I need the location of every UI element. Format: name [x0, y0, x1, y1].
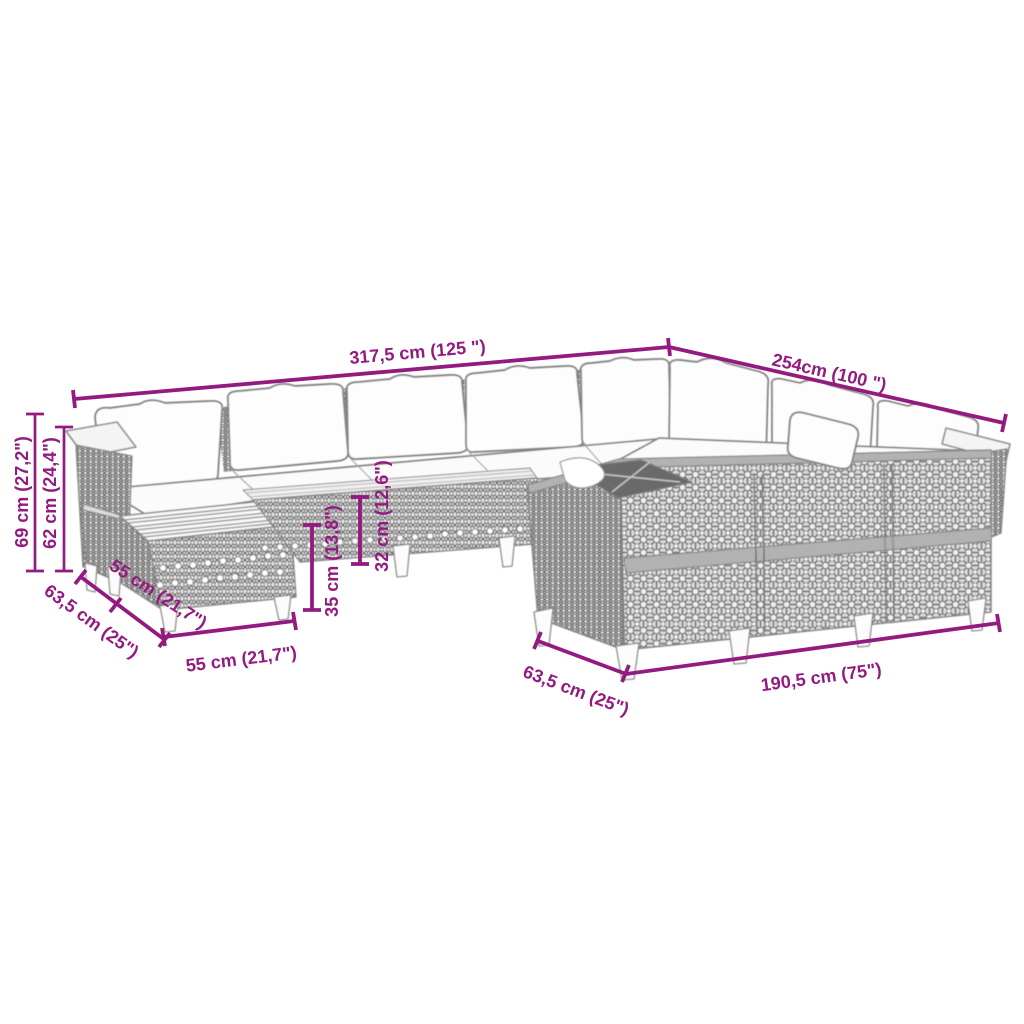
svg-text:69 cm (27,2"): 69 cm (27,2") — [12, 436, 32, 548]
svg-text:32 cm (12,6"): 32 cm (12,6") — [372, 460, 392, 572]
svg-text:55 cm (21,7"): 55 cm (21,7") — [185, 642, 298, 675]
svg-text:63,5 cm (25"): 63,5 cm (25") — [41, 580, 143, 662]
svg-text:35 cm (13,8"): 35 cm (13,8") — [322, 505, 342, 617]
svg-text:62 cm (24,4"): 62 cm (24,4") — [40, 437, 60, 549]
svg-text:190,5 cm (75"): 190,5 cm (75") — [760, 659, 883, 695]
